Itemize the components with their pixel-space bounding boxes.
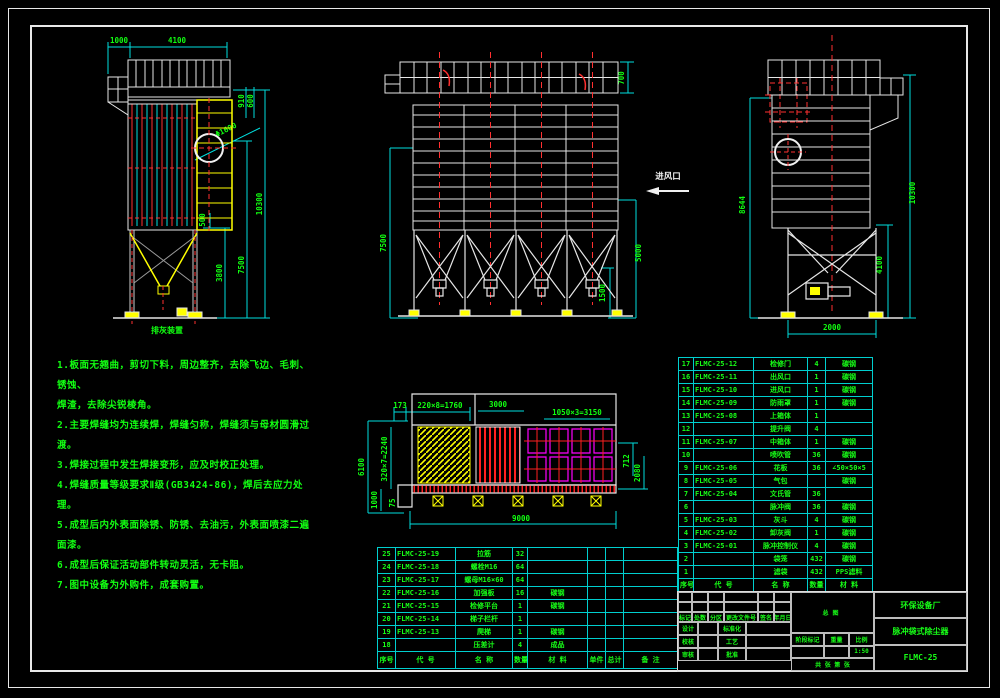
rev-label: 年月日 bbox=[774, 612, 791, 622]
column-marks bbox=[433, 496, 601, 506]
dim-600: 600 bbox=[246, 94, 255, 108]
riser-duct bbox=[191, 98, 237, 232]
rotary-valve bbox=[810, 287, 820, 295]
title-block-revision-area: 标记 处数 分区 更改文件号 签名 年月日 设计 标准化 校核 工艺 审核 bbox=[678, 592, 791, 671]
table-row: 1滤袋432PPS滤料 bbox=[679, 566, 873, 579]
scale-label: 比例 bbox=[849, 633, 874, 646]
table-row: 18压差计4成品 bbox=[378, 639, 678, 652]
table-row: 16FLMC-25-11出风口1碳钢 bbox=[679, 371, 873, 384]
casing-body bbox=[413, 105, 618, 230]
company-name: 环保设备厂 bbox=[874, 592, 967, 618]
table-row: 17FLMC-25-12检修门4碳钢 bbox=[679, 358, 873, 371]
dim-7500: 7500 bbox=[237, 255, 246, 274]
table-row: 23FLMC-25-17螺母M16×6064 bbox=[378, 574, 678, 587]
table-row: 24FLMC-25-18螺栓M1664 bbox=[378, 561, 678, 574]
table-row: 14FLMC-25-09防雨罩1碳钢 bbox=[679, 397, 873, 410]
dim-6100: 6100 bbox=[357, 457, 366, 476]
bom-table-right: 17FLMC-25-12检修门4碳钢16FLMC-25-11出风口1碳钢15FL… bbox=[678, 357, 873, 592]
sign-label: 批准 bbox=[718, 648, 746, 661]
anchor-feet bbox=[409, 310, 622, 316]
bom-table-left: 25FLMC-25-19拉筋3224FLMC-25-18螺栓M166423FLM… bbox=[377, 547, 678, 669]
cad-sheet: 1000 4100 910 600 Φ1600 500 3800 7500 10… bbox=[0, 0, 1000, 698]
table-row: 3FLMC-25-01脉冲控制仪4碳钢 bbox=[679, 540, 873, 553]
weight-label: 重量 bbox=[824, 633, 849, 646]
dim-75: 75 bbox=[388, 498, 397, 507]
table-row: 15FLMC-25-10进风口1碳钢 bbox=[679, 384, 873, 397]
front-elevation-view: 700 7500 5000 1500 bbox=[358, 48, 693, 358]
rev-label: 更改文件号 bbox=[724, 612, 758, 622]
table-row: 5FLMC-25-03灰斗4碳钢 bbox=[679, 514, 873, 527]
sign-label: 工艺 bbox=[718, 635, 746, 648]
note-line: 5.成型后内外表面除锈、防锈、去油污，外表面喷漆二遍面漆。 bbox=[57, 516, 317, 556]
table-row: 20FLMC-25-14梯子栏杆1 bbox=[378, 613, 678, 626]
rev-label: 处数 bbox=[692, 612, 708, 622]
note-line: 4.焊缝质量等级要求Ⅱ级(GB3424-86)，焊后去应力处理。 bbox=[57, 476, 317, 516]
filter-bag-compartment bbox=[128, 100, 197, 230]
anchor-feet bbox=[781, 312, 883, 318]
dim-2240: 320×7=2240 bbox=[380, 436, 389, 482]
table-row: 21FLMC-25-15检修平台1碳钢 bbox=[378, 600, 678, 613]
table-row: 9FLMC-25-06花板36∠50×50×5 bbox=[679, 462, 873, 475]
table-row: 2袋笼432碳钢 bbox=[679, 553, 873, 566]
table-row: 22FLMC-25-16加强板16碳钢 bbox=[378, 587, 678, 600]
dim-500: 500 bbox=[198, 213, 207, 227]
discharge-valve bbox=[177, 308, 187, 316]
dim-9000: 9000 bbox=[512, 514, 531, 523]
table-row: 8FLMC-25-05气包碳钢 bbox=[679, 475, 873, 488]
note-line: 焊渣，去除尖锐棱角。 bbox=[57, 396, 317, 416]
bag-zone-hatched bbox=[418, 427, 470, 483]
scale-value: 1:50 bbox=[849, 646, 874, 659]
grid-centerlines bbox=[524, 427, 616, 483]
dim-8644: 8644 bbox=[738, 195, 747, 214]
sign-label: 审核 bbox=[678, 648, 698, 661]
bom-header-row: 序号 代 号 名 称 数量 材 料 bbox=[679, 579, 873, 592]
title-block-middle: 总图 阶段标记 重量 比例 1:50 共 张 第 张 bbox=[791, 592, 874, 671]
dim-3150: 1050×3=3150 bbox=[552, 408, 602, 417]
dim-910: 910 bbox=[237, 94, 246, 108]
lifting-hooks bbox=[443, 70, 585, 90]
dim-4100: 4100 bbox=[168, 36, 187, 45]
rev-label: 签名 bbox=[758, 612, 774, 622]
plan-section-view: 173 220×8=1760 3000 1050×3=3150 6100 320… bbox=[348, 381, 668, 538]
left-view-caption: 排灰装置 bbox=[151, 325, 183, 335]
casing-body bbox=[772, 95, 898, 228]
hopper-and-support bbox=[113, 230, 217, 324]
table-row: 10喷吹管36碳钢 bbox=[679, 449, 873, 462]
dimension-lines bbox=[750, 75, 916, 338]
note-line: 3.焊接过程中发生焊接变形，应及时校正处理。 bbox=[57, 456, 317, 476]
dim-7500: 7500 bbox=[379, 233, 388, 252]
dim-2000: 2000 bbox=[823, 323, 842, 332]
table-row: 19FLMC-25-13爬梯1碳钢 bbox=[378, 626, 678, 639]
side-elevation-view: 8644 10300 4100 2000 bbox=[728, 33, 973, 353]
sign-label: 校核 bbox=[678, 635, 698, 648]
bag-zone-striped bbox=[476, 427, 520, 483]
dim-1000: 1000 bbox=[110, 36, 129, 45]
inlet-label: 进风口 bbox=[655, 171, 681, 182]
rev-label: 标记 bbox=[678, 612, 692, 622]
wall-hatch-strip bbox=[413, 486, 616, 493]
drawing-number: FLMC-25 bbox=[874, 645, 967, 671]
dim-173: 173 bbox=[393, 401, 407, 410]
title-block-right: 环保设备厂 脉冲袋式除尘器 FLMC-25 bbox=[874, 592, 967, 671]
inlet-arrow-icon bbox=[646, 187, 689, 195]
product-name: 脉冲袋式除尘器 bbox=[874, 618, 967, 644]
bom-left-rows: 25FLMC-25-19拉筋3224FLMC-25-18螺栓M166423FLM… bbox=[378, 548, 678, 652]
table-row: 4FLMC-25-02卸灰阀1碳钢 bbox=[679, 527, 873, 540]
note-line: 6.成型后保证活动部件转动灵活，无卡阻。 bbox=[57, 556, 317, 576]
table-row: 7FLMC-25-04文氏管36 bbox=[679, 488, 873, 501]
note-line: 7.图中设备为外购件，成套购置。 bbox=[57, 576, 317, 596]
sign-label: 标准化 bbox=[718, 622, 746, 635]
dim-3000: 3000 bbox=[489, 400, 508, 409]
title-block: 标记 处数 分区 更改文件号 签名 年月日 设计 标准化 校核 工艺 审核 bbox=[677, 591, 968, 672]
note-line: 2.主要焊缝均为连续焊，焊缝匀称，焊缝须与母材圆滑过渡。 bbox=[57, 416, 317, 456]
dim-5000: 5000 bbox=[634, 243, 643, 262]
drawing-type-label: 总图 bbox=[791, 592, 874, 633]
hopper-row bbox=[398, 230, 633, 316]
table-row: 13FLMC-25-08上箱体1 bbox=[679, 410, 873, 423]
clean-air-plenum bbox=[108, 60, 230, 115]
technical-notes: 1.板面无翘曲，剪切下料，周边整齐，去除飞边、毛刺、锈蚀、 焊渣，去除尖锐棱角。… bbox=[57, 356, 317, 596]
table-row: 12提升阀4 bbox=[679, 423, 873, 436]
dim-2080: 2080 bbox=[633, 463, 642, 482]
bom-right-rows: 17FLMC-25-12检修门4碳钢16FLMC-25-11出风口1碳钢15FL… bbox=[679, 358, 873, 579]
dim-712: 712 bbox=[622, 454, 631, 468]
pulse-valve-grid bbox=[528, 429, 612, 481]
roof-grid bbox=[768, 60, 903, 95]
dim-1760: 220×8=1760 bbox=[417, 401, 463, 410]
stage-label: 阶段标记 bbox=[791, 633, 824, 646]
rev-label: 分区 bbox=[708, 612, 724, 622]
dim-10300: 10300 bbox=[255, 192, 264, 215]
table-row: 11FLMC-25-07中箱体1碳钢 bbox=[679, 436, 873, 449]
dim-1000: 1000 bbox=[370, 490, 379, 509]
left-elevation-view: 1000 4100 910 600 Φ1600 500 3800 7500 10… bbox=[55, 28, 315, 358]
dim-3800: 3800 bbox=[215, 263, 224, 282]
sheet-count: 共 张 第 张 bbox=[791, 658, 874, 671]
dim-10300: 10300 bbox=[908, 181, 917, 204]
note-line: 1.板面无翘曲，剪切下料，周边整齐，去除飞边、毛刺、锈蚀、 bbox=[57, 356, 317, 396]
table-row: 6脉冲阀36碳钢 bbox=[679, 501, 873, 514]
sign-label: 设计 bbox=[678, 622, 698, 635]
table-row: 25FLMC-25-19拉筋32 bbox=[378, 548, 678, 561]
bom-header-row: 序号 代 号 名 称 数量 材 料 单件 总计 备 注 bbox=[378, 652, 678, 669]
